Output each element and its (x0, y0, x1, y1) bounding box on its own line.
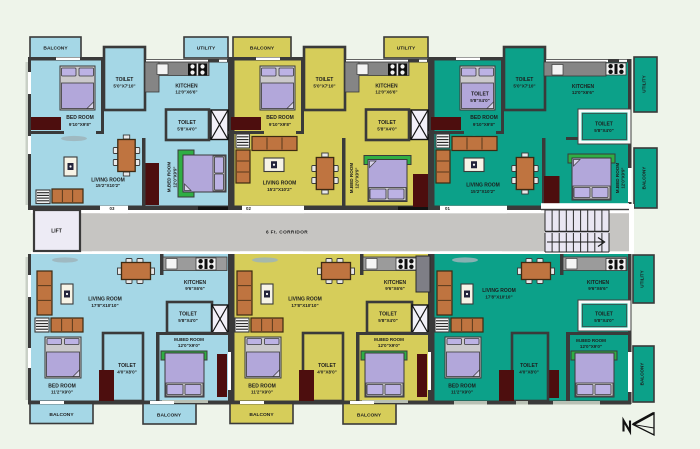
svg-text:BALCONY: BALCONY (642, 167, 647, 190)
svg-text:12'0"X9'9": 12'0"X9'9" (173, 167, 178, 188)
svg-text:UTILITY: UTILITY (640, 270, 645, 287)
svg-text:6 Ft. CORRIDOR: 6 Ft. CORRIDOR (266, 230, 308, 235)
svg-text:12'0"X6'6": 12'0"X6'6" (175, 90, 197, 95)
svg-text:UTILITY: UTILITY (197, 46, 216, 52)
svg-text:TOILET: TOILET (318, 363, 336, 369)
svg-text:12'0"X6'6": 12'0"X6'6" (375, 90, 397, 95)
svg-text:12'0"X9'9": 12'0"X9'9" (355, 168, 360, 189)
svg-text:BALCONY: BALCONY (43, 46, 68, 52)
svg-text:4'0"X8'0": 4'0"X8'0" (117, 370, 137, 375)
svg-text:TOILET: TOILET (595, 122, 613, 128)
svg-text:4'0"X8'0": 4'0"X8'0" (317, 370, 337, 375)
svg-text:12'0"X6'6": 12'0"X6'6" (572, 90, 594, 95)
svg-text:TOILET: TOILET (178, 120, 196, 126)
svg-text:5'8"X4'0": 5'8"X4'0" (594, 318, 614, 323)
svg-text:BED ROOM: BED ROOM (66, 115, 94, 121)
svg-text:15'2"X10'2": 15'2"X10'2" (96, 183, 121, 188)
svg-text:12'0"X9'0": 12'0"X9'0" (378, 343, 400, 348)
svg-text:5'0"X7'10": 5'0"X7'10" (513, 84, 535, 89)
svg-text:TOILET: TOILET (595, 312, 613, 318)
svg-text:TOILET: TOILET (179, 312, 197, 318)
svg-text:12'0"X9'9": 12'0"X9'9" (621, 168, 626, 189)
svg-text:LIVING ROOM: LIVING ROOM (288, 297, 322, 303)
svg-text:4'0"X8'0": 4'0"X8'0" (519, 370, 539, 375)
svg-text:M.BED ROOM: M.BED ROOM (615, 163, 620, 194)
svg-text:15'2"X10'2": 15'2"X10'2" (267, 187, 292, 192)
svg-text:5'0"X7'10": 5'0"X7'10" (313, 84, 335, 89)
svg-text:BED ROOM: BED ROOM (470, 115, 498, 121)
svg-text:02: 02 (246, 206, 251, 211)
svg-text:17'8"X10'10": 17'8"X10'10" (91, 303, 118, 308)
svg-text:12'0"X9'0": 12'0"X9'0" (580, 344, 602, 349)
svg-text:5'8"X4'0": 5'8"X4'0" (378, 318, 398, 323)
svg-text:15'2"X10'2": 15'2"X10'2" (471, 189, 496, 194)
svg-text:5'8"X4'0": 5'8"X4'0" (178, 318, 198, 323)
svg-text:9'6"X6'6": 9'6"X6'6" (588, 286, 608, 291)
svg-text:5'8"X4'0": 5'8"X4'0" (594, 128, 614, 133)
svg-text:5'0"X7'10": 5'0"X7'10" (113, 84, 135, 89)
svg-text:17'8"X10'10": 17'8"X10'10" (291, 303, 318, 308)
svg-text:BALCONY: BALCONY (49, 412, 74, 418)
svg-text:12'0"X9'0": 12'0"X9'0" (178, 343, 200, 348)
svg-text:BALCONY: BALCONY (249, 412, 274, 418)
svg-text:LIVING ROOM: LIVING ROOM (466, 183, 500, 189)
svg-text:M.BED ROOM: M.BED ROOM (374, 337, 404, 342)
svg-text:9'10"X9'8": 9'10"X9'8" (473, 122, 495, 127)
svg-text:TOILET: TOILET (516, 77, 534, 83)
svg-text:9'6"X6'6": 9'6"X6'6" (385, 286, 405, 291)
svg-text:KITCHEN: KITCHEN (572, 84, 595, 90)
svg-text:9'10"X9'8": 9'10"X9'8" (69, 122, 91, 127)
svg-text:TOILET: TOILET (118, 363, 136, 369)
svg-text:9'10"X9'8": 9'10"X9'8" (269, 122, 291, 127)
svg-text:M.BED ROOM: M.BED ROOM (349, 163, 354, 194)
svg-text:BALCONY: BALCONY (250, 46, 275, 52)
svg-text:11'2"X9'0": 11'2"X9'0" (51, 390, 73, 395)
svg-text:TOILET: TOILET (471, 92, 489, 98)
svg-text:M.BED ROOM: M.BED ROOM (174, 337, 204, 342)
svg-text:TOILET: TOILET (378, 120, 396, 126)
svg-text:UTILITY: UTILITY (642, 75, 647, 92)
svg-text:5'8"X4'0": 5'8"X4'0" (470, 98, 490, 103)
svg-text:01: 01 (445, 206, 450, 211)
svg-text:LIVING ROOM: LIVING ROOM (88, 297, 122, 303)
svg-text:M.BED ROOM: M.BED ROOM (576, 338, 606, 343)
svg-text:5'8"X4'0": 5'8"X4'0" (377, 127, 397, 132)
svg-text:LIVING ROOM: LIVING ROOM (482, 288, 516, 294)
svg-text:TOILET: TOILET (379, 312, 397, 318)
svg-text:BALCONY: BALCONY (640, 363, 645, 386)
svg-text:LIFT: LIFT (51, 229, 62, 235)
svg-text:M.BED ROOM: M.BED ROOM (167, 162, 172, 193)
svg-text:03: 03 (110, 206, 115, 211)
svg-text:17'8"X10'10": 17'8"X10'10" (485, 295, 512, 300)
svg-text:9'6"X6'6": 9'6"X6'6" (185, 286, 205, 291)
svg-text:BED ROOM: BED ROOM (266, 115, 294, 121)
svg-text:TOILET: TOILET (116, 77, 134, 83)
svg-text:11'2"X9'0": 11'2"X9'0" (451, 390, 473, 395)
svg-text:BALCONY: BALCONY (357, 413, 382, 419)
svg-text:TOILET: TOILET (316, 77, 334, 83)
svg-text:11'2"X9'0": 11'2"X9'0" (251, 390, 273, 395)
svg-text:5'8"X4'0": 5'8"X4'0" (177, 127, 197, 132)
svg-text:TOILET: TOILET (520, 363, 538, 369)
svg-text:UTILITY: UTILITY (397, 46, 416, 52)
svg-text:BALCONY: BALCONY (157, 413, 182, 419)
svg-text:LIVING ROOM: LIVING ROOM (263, 181, 297, 187)
